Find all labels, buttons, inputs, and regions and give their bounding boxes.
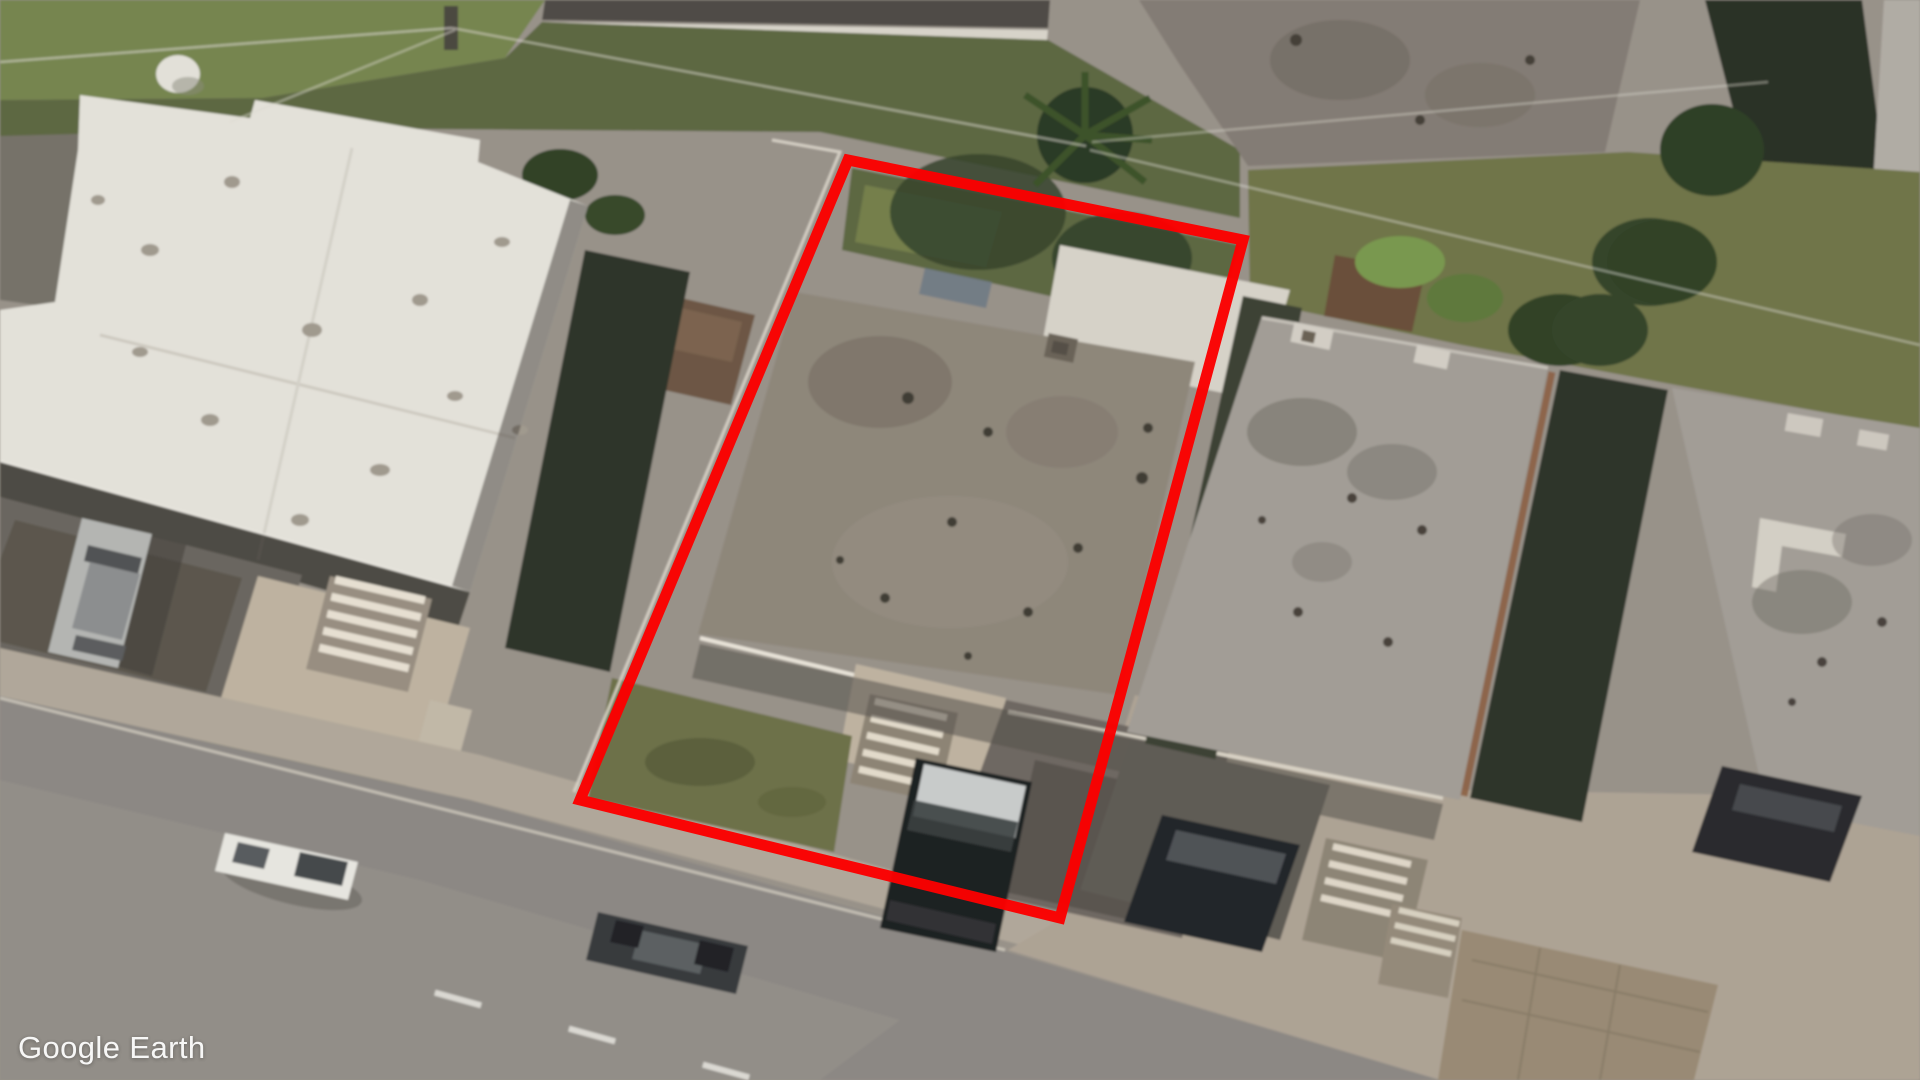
aerial-imagery-layer xyxy=(0,0,1920,1080)
color-grade-overlay xyxy=(0,0,1920,1080)
map-canvas[interactable] xyxy=(0,0,1920,1080)
google-earth-watermark: Google Earth xyxy=(18,1030,205,1066)
